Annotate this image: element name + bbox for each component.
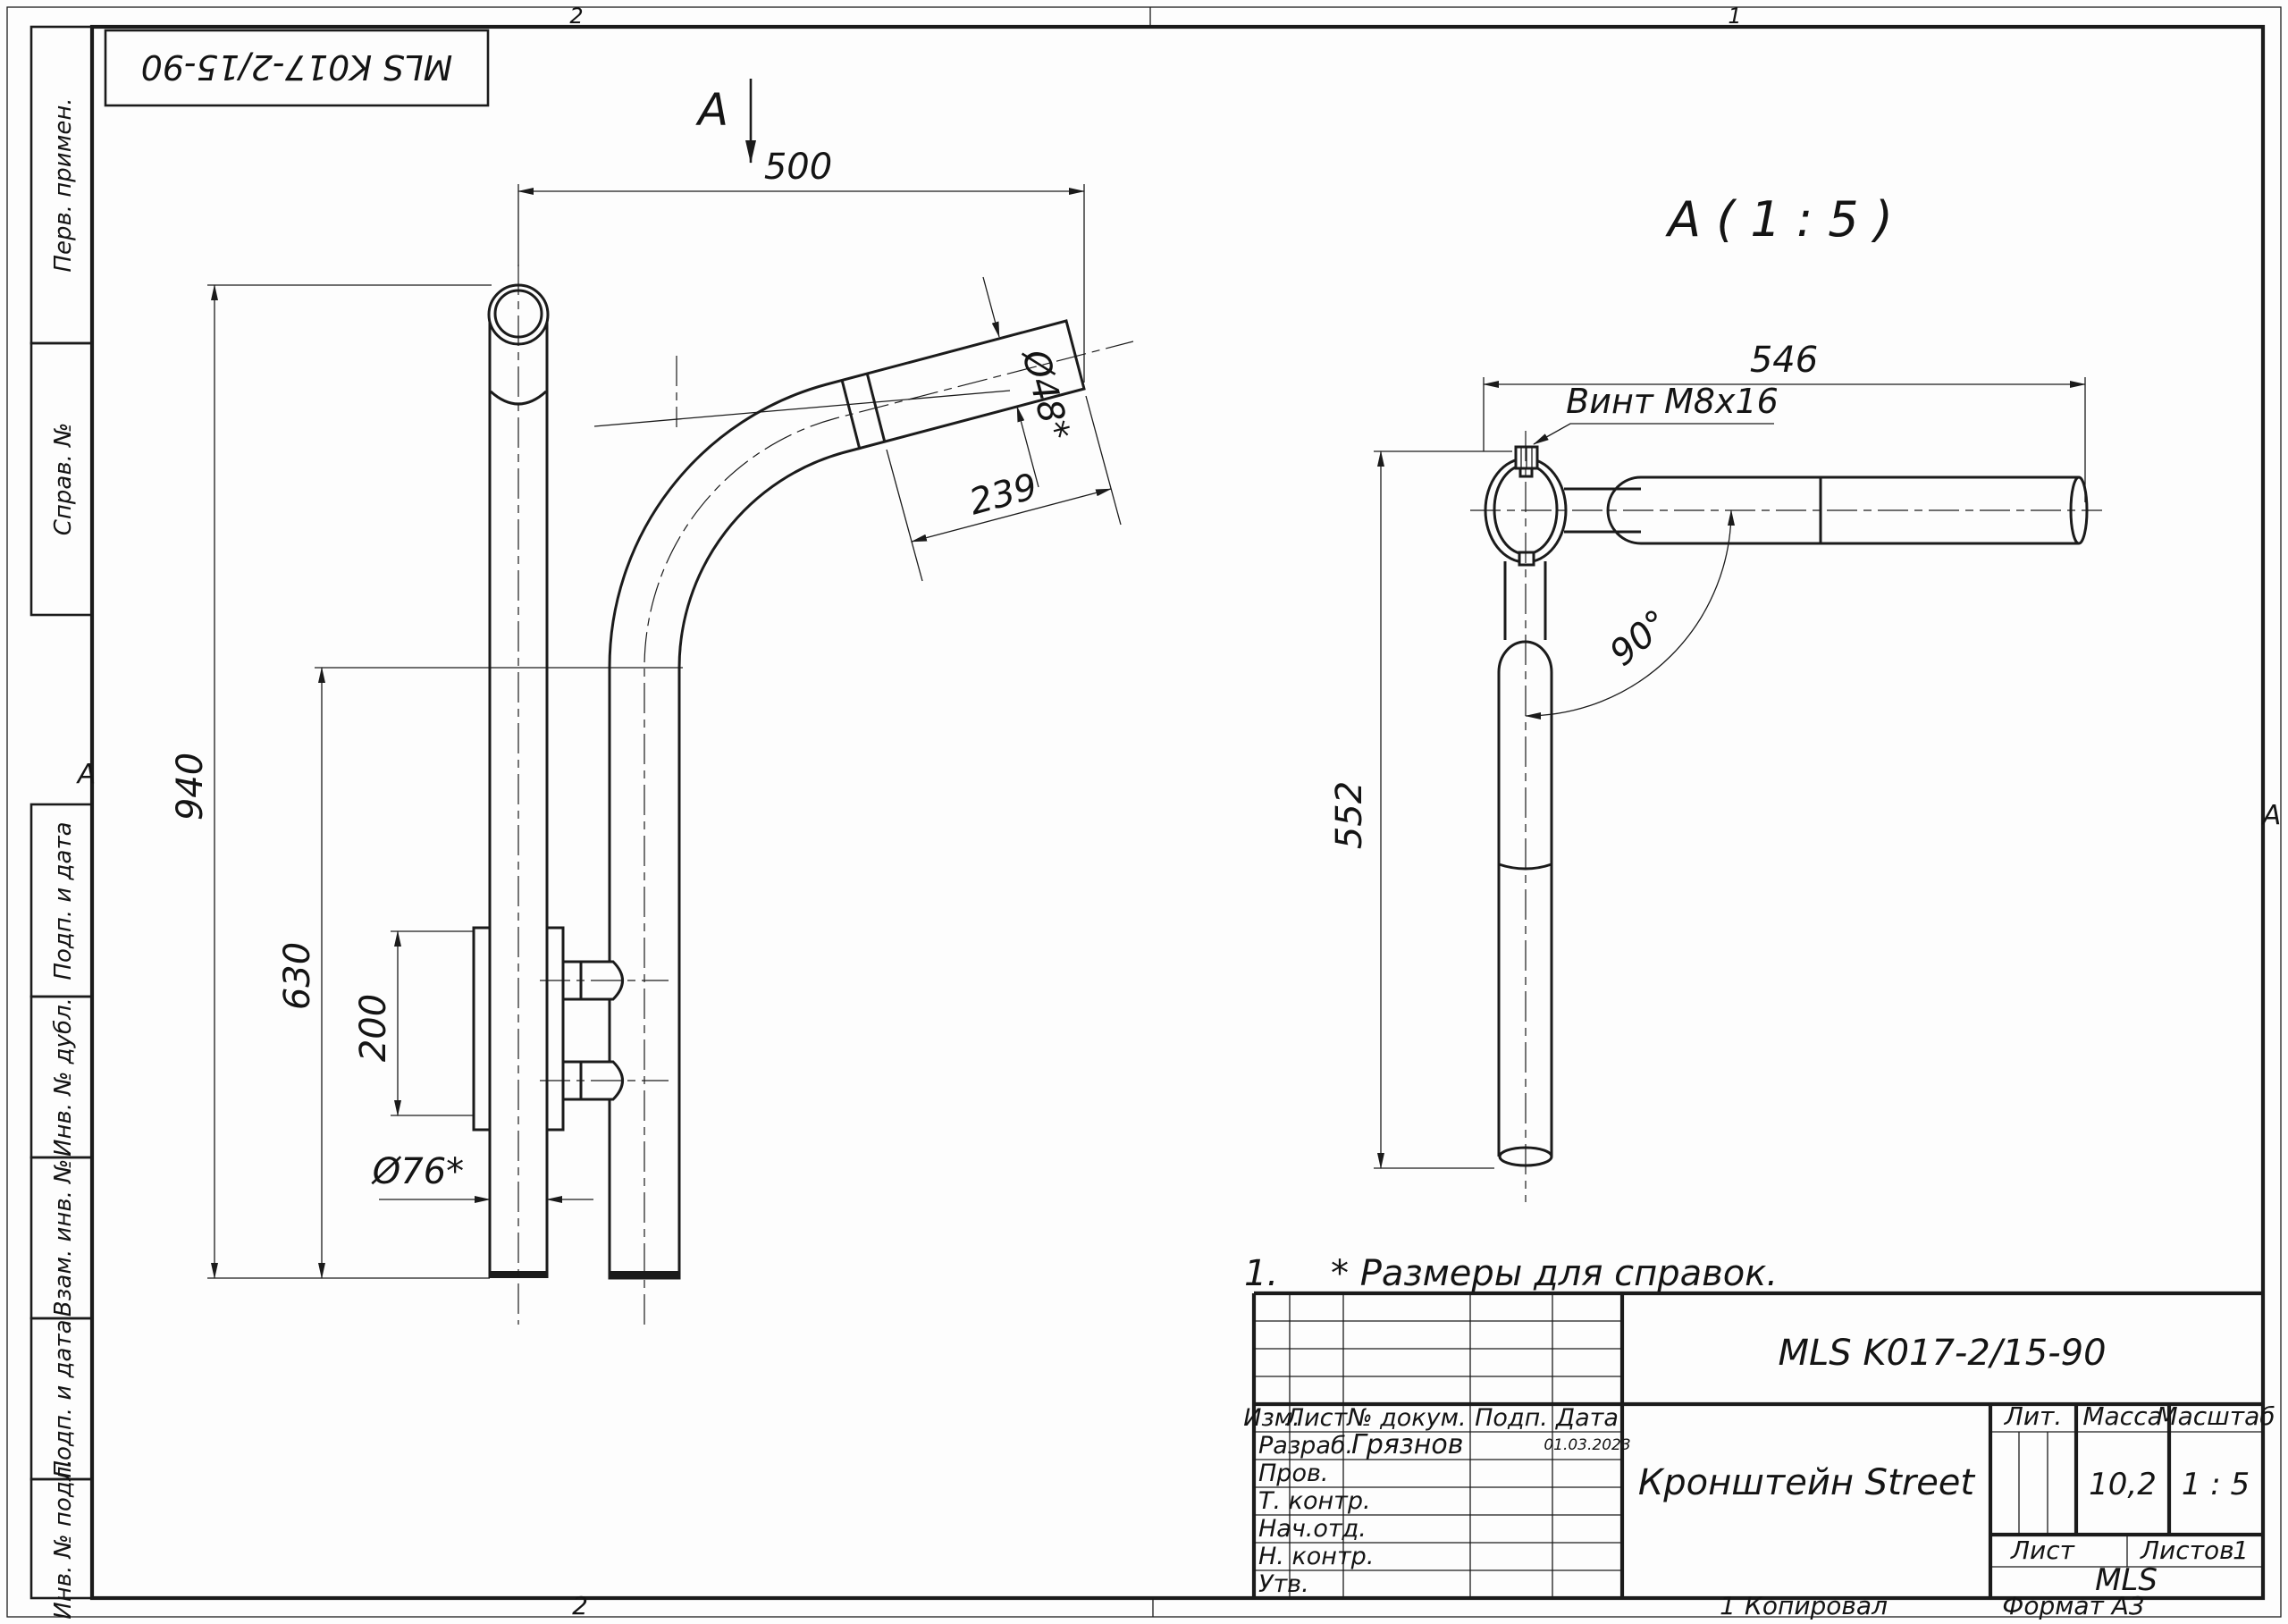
dim-630: 630 [277, 942, 318, 1010]
tb-company: MLS [2095, 1562, 2158, 1598]
sidebar-label: Подп. и дата [50, 1319, 77, 1477]
sidebar-label: Перв. примен. [50, 97, 77, 272]
tb-designation: MLS K017-2/15-90 [1778, 1333, 2106, 1374]
technical-drawing: 2 1 2 1 A А Копировал Формат А3 Перв. пр… [0, 0, 2288, 1624]
tb-scale-label: Масштаб [2156, 1401, 2275, 1431]
dim-239: 239 [965, 466, 1042, 523]
th-podp: Подп. [1475, 1404, 1548, 1432]
footer-copied-label: Копировал [1745, 1591, 1888, 1620]
tb-scale-value: 1 : 5 [2182, 1467, 2250, 1502]
row-role: Нач.отд. [1258, 1515, 1367, 1543]
row-role: Н. контр. [1258, 1543, 1374, 1570]
dim-500: 500 [764, 147, 832, 188]
view-arrow-A: A [695, 79, 751, 163]
zone-bottom-left: 2 [572, 1591, 588, 1620]
th-dokum: № докум. [1345, 1404, 1466, 1432]
row-role: Утв. [1258, 1570, 1309, 1598]
sidebar-label: Инв. № дубл. [50, 997, 77, 1157]
detail-view-A: A ( 1 : 5 ) [1329, 191, 2102, 1202]
drawing-sheet: 2 1 2 1 A А Копировал Формат А3 Перв. пр… [0, 0, 2288, 1624]
row-role: Пров. [1258, 1460, 1328, 1487]
sheet-frame: 2 1 2 1 A А Копировал Формат А3 [7, 4, 2281, 1620]
detail-dimensions: 546 552 90° [1329, 340, 2085, 1168]
sidebar-label: Справ. № [50, 423, 77, 535]
screw-callout: Винт М8х16 [1534, 382, 1779, 444]
title-block: Изм. Лист № докум. Подп. Дата Разраб. Гр… [1243, 1293, 2275, 1598]
tb-sheets-value: 1 [2233, 1536, 2249, 1565]
collar-bottom-tab [1519, 552, 1534, 565]
dim-552: 552 [1329, 781, 1370, 849]
bracket-pipe [610, 321, 1084, 1278]
sidebar-label: Взам. инв. № [50, 1159, 77, 1317]
detail-view-title: A ( 1 : 5 ) [1665, 191, 1893, 248]
zone-row-letter-right: А [2261, 800, 2282, 831]
dim-90deg: 90° [1602, 602, 1678, 675]
sidebar-label: Подп. и дата [50, 821, 77, 980]
dim-940: 940 [170, 753, 211, 820]
zone-bottom-right: 1 [1720, 1591, 1736, 1620]
note-number: 1. [1244, 1253, 1278, 1294]
row-name: Грязнов [1351, 1429, 1463, 1460]
tb-sheets-label: Листов [2140, 1536, 2234, 1565]
sidebar-blocks: Перв. примен. Справ. № Подп. и дата Инв.… [31, 27, 92, 1620]
view-arrow-label: A [695, 84, 728, 136]
sheet-outer-border [7, 7, 2281, 1617]
top-stamp: MLS K017-2/15-90 [105, 30, 488, 105]
zone-row-letter-left: A [76, 759, 97, 790]
zone-top-right: 1 [1728, 4, 1741, 29]
note-text: * Размеры для справок. [1331, 1253, 1778, 1294]
tb-lit-label: Лит. [2004, 1401, 2062, 1431]
row-date: 01.03.2023 [1544, 1436, 1630, 1454]
dim-76: Ø76* [371, 1151, 464, 1192]
th-data: Дата [1555, 1404, 1619, 1432]
notes: 1. * Размеры для справок. [1244, 1253, 1778, 1294]
stamp-designation: MLS K017-2/15-90 [141, 47, 453, 87]
screw-label: Винт М8х16 [1566, 382, 1779, 421]
front-view: A 500 940 630 200 Ø76* [170, 79, 1133, 1325]
zone-top-left: 2 [569, 4, 583, 29]
dim-546: 546 [1750, 340, 1818, 381]
th-list: Лист [1285, 1404, 1349, 1432]
row-role: Т. контр. [1258, 1487, 1371, 1515]
row-role: Разраб. [1258, 1432, 1353, 1460]
tb-part-name: Кронштейн Street [1638, 1462, 1976, 1503]
tb-mass-label: Масса [2082, 1401, 2162, 1431]
sidebar-label: Инв. № подл. [50, 1459, 77, 1619]
dim-200: 200 [353, 994, 394, 1062]
tb-sheet-label: Лист [2010, 1536, 2075, 1565]
tb-mass-value: 10,2 [2089, 1467, 2157, 1502]
